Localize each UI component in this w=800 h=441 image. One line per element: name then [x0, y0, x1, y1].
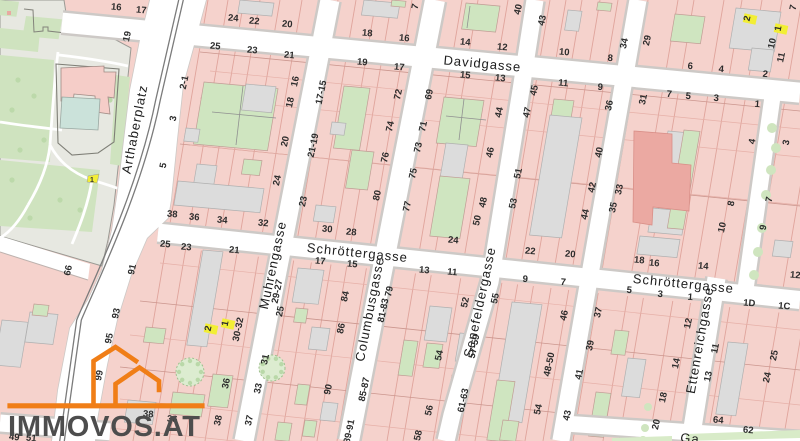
svg-text:77: 77 — [401, 200, 414, 213]
svg-text:17: 17 — [314, 256, 325, 268]
svg-text:25: 25 — [159, 239, 171, 251]
svg-text:18: 18 — [633, 255, 644, 267]
svg-text:90: 90 — [322, 383, 335, 396]
svg-text:17: 17 — [393, 62, 404, 74]
svg-text:33: 33 — [252, 382, 265, 395]
svg-text:18: 18 — [284, 96, 297, 109]
svg-text:80: 80 — [371, 189, 384, 202]
svg-text:11: 11 — [558, 78, 570, 90]
svg-text:9: 9 — [522, 274, 528, 285]
svg-text:62: 62 — [742, 425, 753, 437]
svg-text:48: 48 — [477, 196, 490, 209]
svg-text:10: 10 — [558, 47, 569, 59]
svg-text:22: 22 — [248, 16, 259, 28]
svg-text:3: 3 — [657, 289, 663, 300]
svg-text:22: 22 — [524, 246, 535, 258]
svg-text:14: 14 — [459, 37, 471, 49]
svg-text:46: 46 — [484, 146, 497, 159]
svg-text:37: 37 — [592, 306, 605, 319]
svg-text:19: 19 — [356, 57, 367, 69]
svg-text:73: 73 — [412, 141, 425, 154]
svg-text:15: 15 — [346, 259, 358, 271]
svg-text:17: 17 — [135, 5, 146, 17]
svg-text:23: 23 — [297, 195, 310, 208]
svg-text:93: 93 — [110, 307, 123, 320]
svg-text:32: 32 — [257, 218, 268, 230]
svg-text:38: 38 — [212, 414, 225, 427]
svg-text:18: 18 — [657, 391, 670, 404]
svg-text:24: 24 — [447, 235, 459, 247]
svg-text:56: 56 — [423, 404, 436, 417]
svg-text:37: 37 — [243, 414, 256, 427]
svg-text:29: 29 — [641, 34, 654, 47]
svg-text:39: 39 — [584, 339, 597, 352]
svg-text:21: 21 — [228, 245, 240, 257]
svg-text:7: 7 — [560, 277, 566, 288]
svg-text:36: 36 — [220, 377, 233, 390]
svg-text:14: 14 — [697, 261, 709, 273]
svg-text:1C: 1C — [778, 301, 791, 313]
svg-text:Ga: Ga — [680, 430, 701, 441]
svg-text:9: 9 — [597, 82, 603, 93]
svg-text:16: 16 — [110, 2, 121, 14]
svg-text:16: 16 — [398, 33, 409, 45]
svg-text:10: 10 — [716, 221, 729, 234]
svg-text:76: 76 — [379, 151, 392, 164]
svg-text:36: 36 — [188, 212, 199, 224]
svg-text:6: 6 — [687, 61, 693, 72]
svg-text:64: 64 — [712, 415, 724, 427]
svg-text:79: 79 — [383, 285, 396, 298]
svg-text:IMMOVOS.AT: IMMOVOS.AT — [8, 411, 201, 441]
svg-text:36: 36 — [603, 99, 616, 112]
svg-text:10: 10 — [766, 37, 779, 50]
svg-text:66: 66 — [62, 264, 75, 277]
svg-text:12: 12 — [496, 42, 507, 54]
svg-text:12: 12 — [682, 317, 695, 330]
svg-text:52: 52 — [459, 296, 472, 309]
svg-text:24: 24 — [227, 13, 239, 25]
svg-text:28: 28 — [345, 227, 356, 239]
svg-text:16: 16 — [289, 75, 302, 88]
svg-text:23: 23 — [180, 242, 191, 254]
svg-text:8: 8 — [607, 53, 613, 64]
svg-text:33: 33 — [613, 183, 626, 196]
svg-text:42: 42 — [586, 181, 599, 194]
svg-text:23: 23 — [246, 45, 257, 57]
svg-text:18: 18 — [361, 28, 372, 40]
svg-text:20: 20 — [564, 249, 575, 261]
svg-text:46: 46 — [558, 309, 571, 322]
svg-text:43: 43 — [536, 14, 549, 27]
svg-text:1: 1 — [90, 177, 94, 184]
svg-text:20: 20 — [279, 135, 292, 148]
svg-text:25: 25 — [209, 41, 221, 53]
svg-text:50: 50 — [471, 214, 484, 227]
svg-text:53: 53 — [507, 197, 520, 210]
svg-text:34: 34 — [216, 215, 228, 227]
svg-text:11: 11 — [447, 267, 459, 279]
svg-text:12: 12 — [789, 270, 800, 282]
svg-text:21: 21 — [283, 50, 295, 62]
svg-text:3: 3 — [713, 93, 719, 104]
svg-text:2: 2 — [762, 69, 768, 80]
svg-text:47: 47 — [521, 106, 534, 119]
svg-text:72: 72 — [392, 88, 405, 101]
svg-text:13: 13 — [702, 370, 715, 383]
svg-text:1D: 1D — [743, 298, 756, 310]
svg-text:40: 40 — [593, 146, 606, 159]
svg-text:7: 7 — [666, 89, 672, 100]
svg-text:13: 13 — [418, 265, 429, 277]
svg-text:20: 20 — [281, 19, 292, 31]
svg-text:13: 13 — [494, 73, 505, 85]
svg-text:30: 30 — [321, 224, 332, 236]
svg-text:20: 20 — [650, 418, 663, 431]
svg-text:38: 38 — [166, 209, 177, 221]
svg-text:86: 86 — [335, 322, 348, 335]
svg-text:69: 69 — [423, 88, 436, 101]
svg-text:43: 43 — [561, 409, 574, 422]
svg-text:15: 15 — [459, 70, 471, 82]
svg-text:40: 40 — [512, 3, 525, 16]
svg-text:16: 16 — [648, 258, 659, 270]
svg-text:19: 19 — [121, 30, 134, 43]
